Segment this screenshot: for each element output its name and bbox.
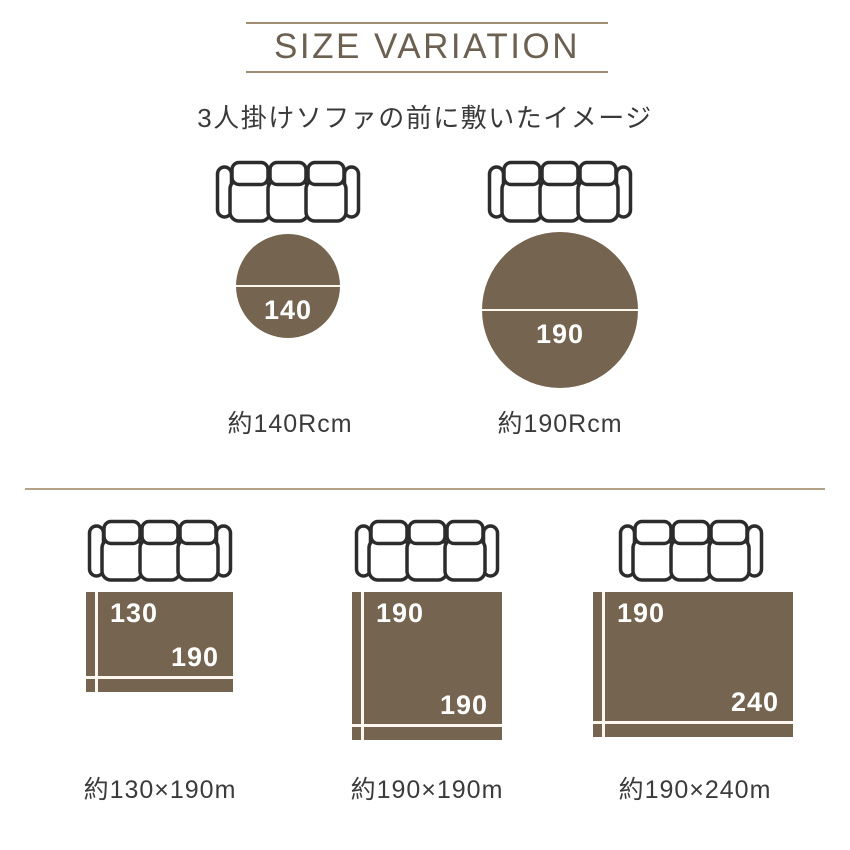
size-variation-diagram: SIZE VARIATION 3人掛けソファの前に敷いたイメージ 140 約14… (0, 0, 850, 850)
rug-height-label: 190 (617, 598, 665, 629)
rect-rug-190x240: 190 240 (593, 592, 793, 737)
sofa-top-view-icon (215, 160, 361, 224)
width-measure-line (593, 721, 793, 724)
sofa-top-view-icon (87, 519, 233, 583)
rect-rug-130x190-caption: 約130×190m (40, 770, 280, 806)
page-subtitle: 3人掛けソファの前に敷いたイメージ (0, 98, 850, 135)
rug-width-label: 190 (171, 642, 219, 673)
rect-rug-190x190-caption: 約190×190m (307, 770, 547, 806)
round-rug-190-caption: 約190Rcm (460, 404, 660, 440)
title-rule-bottom (246, 71, 608, 73)
round-rug-140-caption: 約140Rcm (190, 404, 390, 440)
rect-rug-130x190: 130 190 (86, 592, 233, 692)
rug-width-label: 190 (440, 690, 488, 721)
width-measure-line (352, 724, 502, 727)
rug-width-label: 240 (731, 687, 779, 718)
rect-rug-190x190: 190 190 (352, 592, 502, 740)
round-rug-140: 140 (236, 234, 340, 338)
diameter-label: 190 (482, 310, 638, 350)
sofa-top-view-icon (354, 519, 500, 583)
rect-rug-190x240-caption: 約190×240m (575, 770, 815, 806)
section-divider (25, 488, 825, 490)
sofa-top-view-icon (487, 160, 633, 224)
height-measure-line (361, 592, 364, 740)
diameter-label: 140 (236, 286, 340, 326)
width-measure-line (86, 676, 233, 679)
round-rug-190: 190 (482, 232, 638, 388)
rug-height-label: 130 (110, 598, 158, 629)
sofa-top-view-icon (618, 519, 764, 583)
height-measure-line (602, 592, 605, 737)
rug-height-label: 190 (376, 598, 424, 629)
page-title: SIZE VARIATION (244, 24, 610, 70)
